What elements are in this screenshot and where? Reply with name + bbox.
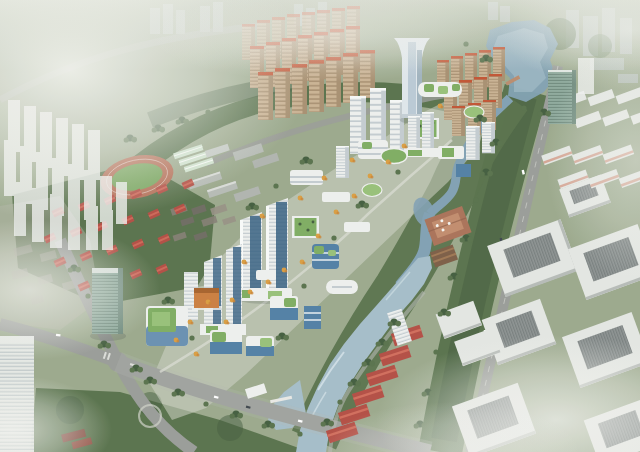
aerial-rendering: [0, 0, 640, 452]
fog-overlay: [0, 0, 640, 452]
